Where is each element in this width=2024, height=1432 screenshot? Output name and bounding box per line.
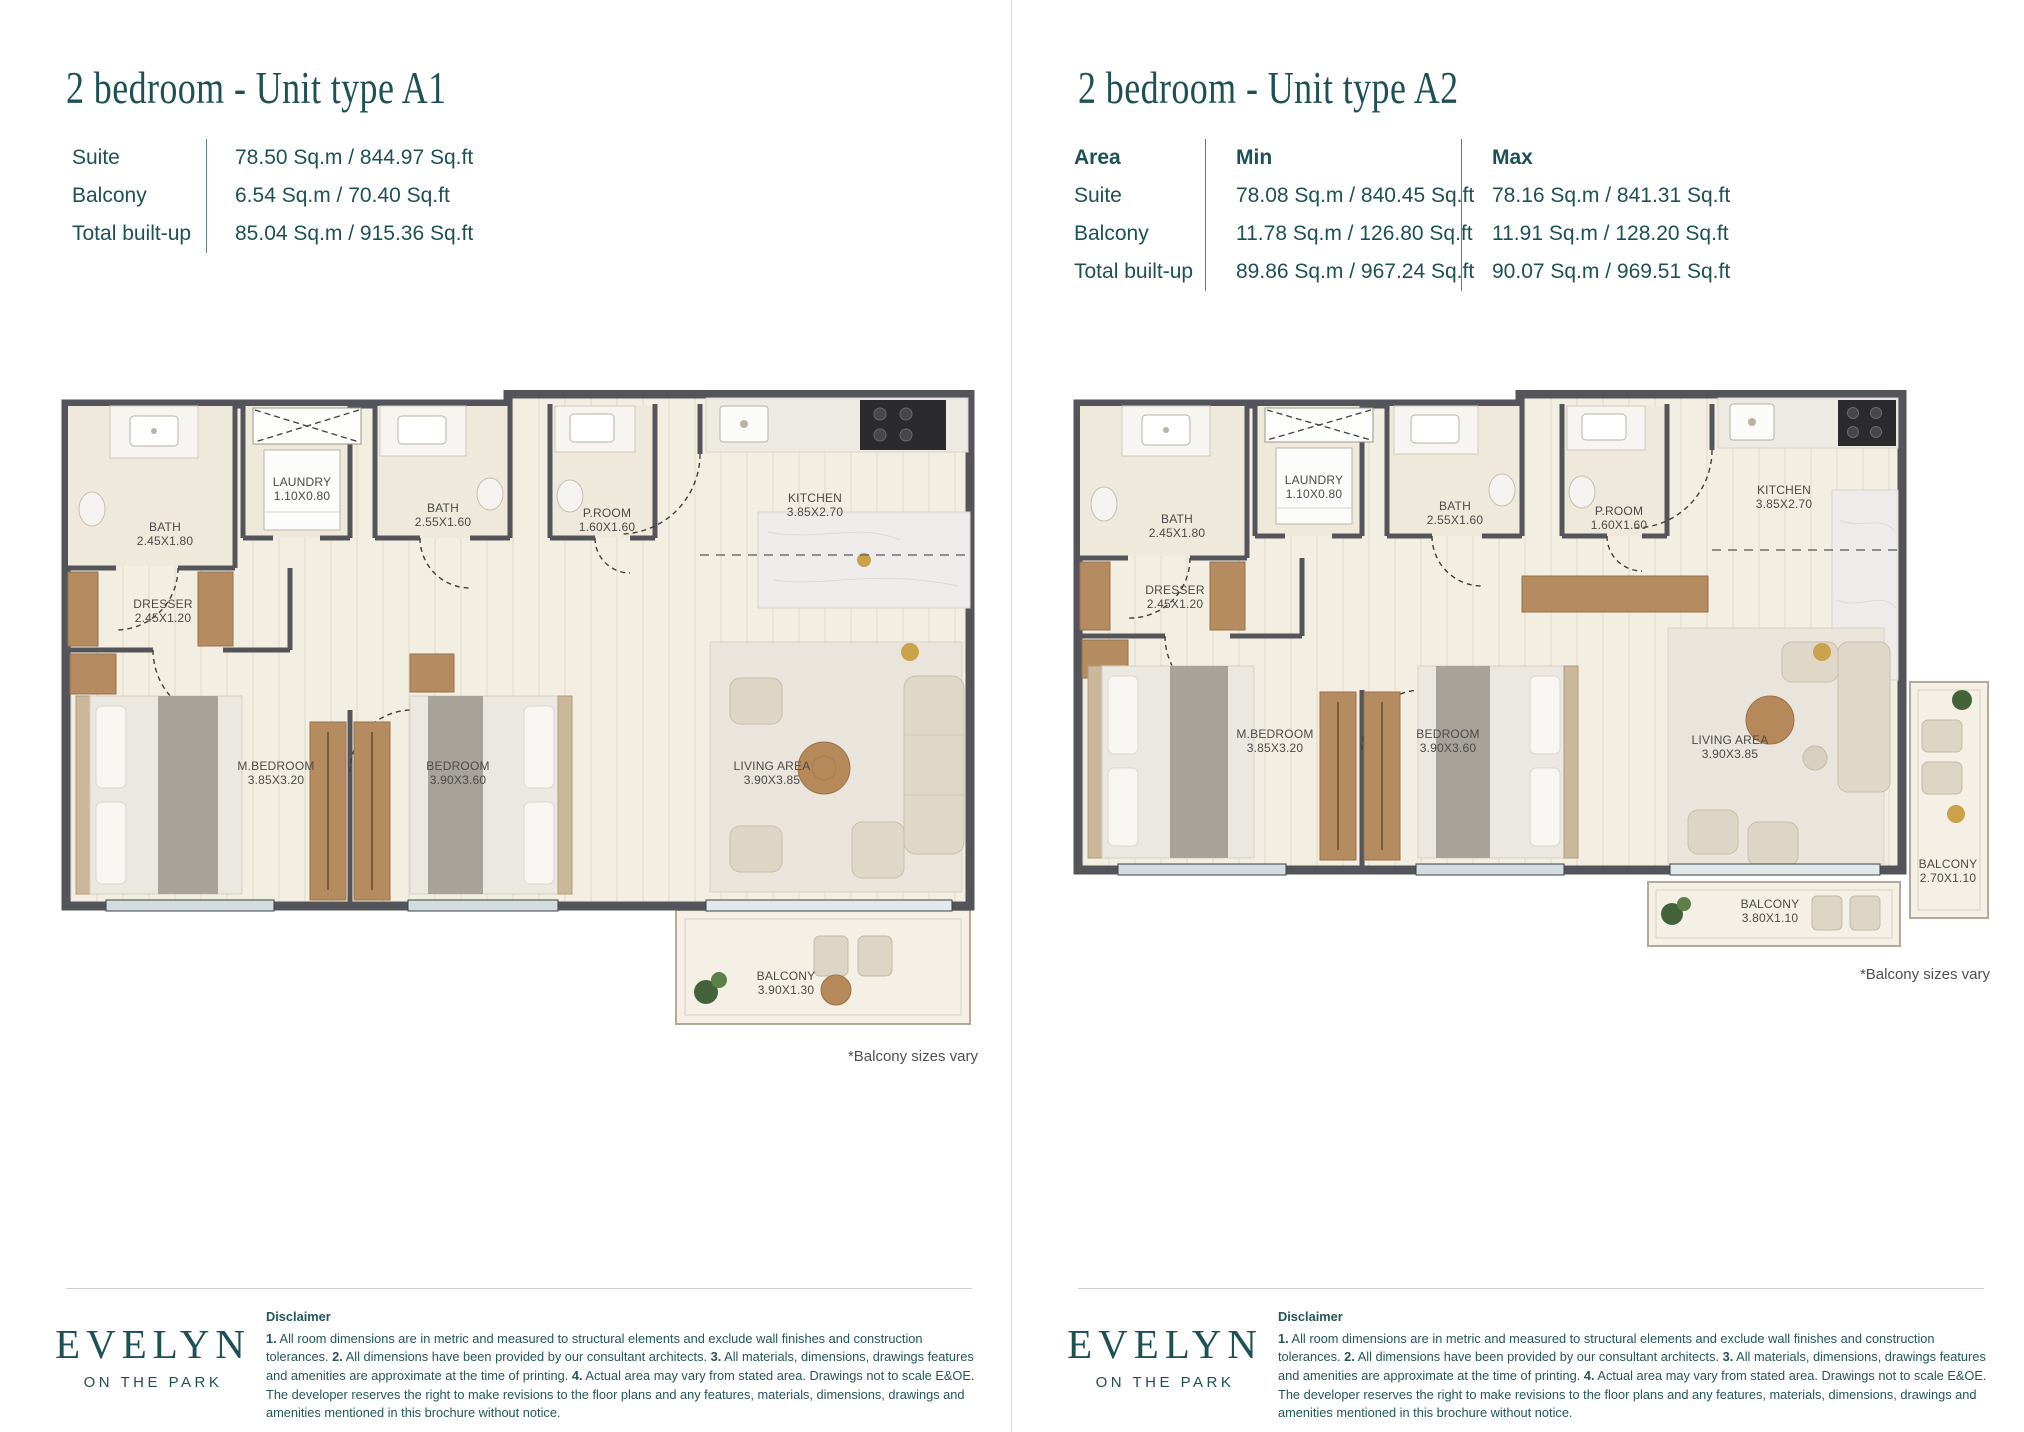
room-dim-dresser: 2.45X1.20 xyxy=(135,611,192,625)
logo-name: EVELYN xyxy=(1060,1322,1270,1367)
room-label-bedroom: BEDROOM xyxy=(426,759,489,773)
bedroom-bed xyxy=(410,696,572,894)
room-label-bath2: BATH xyxy=(1439,499,1471,513)
room-label-bath2: BATH xyxy=(427,501,459,515)
room-label-master-bedroom: M.BEDROOM xyxy=(237,759,314,773)
room-dim-balcony: 3.90X1.30 xyxy=(758,983,815,997)
row-max: 78.16 Sq.m / 841.31 Sq.ft xyxy=(1461,177,1730,215)
room-dim-powder-room: 1.60X1.60 xyxy=(1591,518,1648,532)
room-label-living-area: LIVING AREA xyxy=(1692,733,1769,747)
table-row: Suite 78.08 Sq.m / 840.45 Sq.ft 78.16 Sq… xyxy=(1074,177,1730,215)
room-dim-laundry: 1.10X0.80 xyxy=(1286,487,1343,501)
room-dim-living-area: 3.90X3.85 xyxy=(1702,747,1759,761)
room-dim-bath-main: 2.45X1.80 xyxy=(137,534,194,548)
table-header-row: Area Min Max xyxy=(1074,139,1730,177)
floorplan-a1: BATH 2.45X1.80 LAUNDRY 1.10X0.80 BATH 2.… xyxy=(58,390,978,1030)
logo-tagline: ON THE PARK xyxy=(48,1374,258,1391)
disclaimer: Disclaimer 1. All room dimensions are in… xyxy=(266,1308,978,1423)
room-dim-balcony: 3.80X1.10 xyxy=(1742,911,1799,925)
balcony-note: *Balcony sizes vary xyxy=(848,1048,978,1065)
room-label-powder-room: P.ROOM xyxy=(1595,504,1643,518)
room-dim-bath-main: 2.45X1.80 xyxy=(1149,526,1206,540)
row-label: Suite xyxy=(72,139,206,177)
entry-door-panel xyxy=(1265,408,1373,442)
windows xyxy=(1118,864,1880,875)
brochure-page-a2: 2 bedroom - Unit type A2 Area Min Max Su… xyxy=(1012,0,2024,1432)
room-label-balcony: BALCONY xyxy=(757,969,816,983)
room-dim-kitchen: 3.85X2.70 xyxy=(1756,497,1813,511)
page-title: 2 bedroom - Unit type A1 xyxy=(66,62,447,114)
row-max: 11.91 Sq.m / 128.20 Sq.ft xyxy=(1461,215,1729,253)
balcony-note: *Balcony sizes vary xyxy=(1860,966,1990,983)
header-area: Area xyxy=(1074,139,1205,177)
room-label-balcony: BALCONY xyxy=(1741,897,1800,911)
windows xyxy=(106,900,952,911)
master-bed xyxy=(76,696,242,894)
row-label: Balcony xyxy=(1074,215,1205,253)
room-dim-balcony-side: 2.70X1.10 xyxy=(1920,871,1977,885)
row-label: Total built-up xyxy=(1074,253,1205,291)
footer-divider xyxy=(66,1288,972,1289)
disclaimer-title: Disclaimer xyxy=(266,1308,978,1327)
room-label-bedroom: BEDROOM xyxy=(1416,727,1479,741)
room-label-living-area: LIVING AREA xyxy=(734,759,811,773)
brand-logo: EVELYN ON THE PARK xyxy=(1060,1322,1270,1391)
room-label-laundry: LAUNDRY xyxy=(1285,473,1344,487)
row-value: 78.50 Sq.m / 844.97 Sq.ft xyxy=(206,139,473,177)
master-bed xyxy=(1088,666,1254,858)
room-dim-powder-room: 1.60X1.60 xyxy=(579,520,636,534)
room-dim-kitchen: 3.85X2.70 xyxy=(787,505,844,519)
disclaimer-text: 1. All room dimensions are in metric and… xyxy=(266,1330,978,1423)
logo-name: EVELYN xyxy=(48,1322,258,1367)
row-min: 78.08 Sq.m / 840.45 Sq.ft xyxy=(1205,177,1461,215)
room-label-bath-main: BATH xyxy=(1161,512,1193,526)
row-label: Balcony xyxy=(72,177,206,215)
room-dim-laundry: 1.10X0.80 xyxy=(274,489,331,503)
room-dim-living-area: 3.90X3.85 xyxy=(744,773,801,787)
entry-door-panel xyxy=(253,408,361,444)
header-min: Min xyxy=(1205,139,1461,177)
logo-tagline: ON THE PARK xyxy=(1060,1374,1270,1391)
room-label-powder-room: P.ROOM xyxy=(583,506,631,520)
brochure-spread: { "colors": { "accent_teal": "#1d5156", … xyxy=(0,0,2024,1432)
stove-icon xyxy=(860,400,946,450)
row-label: Suite xyxy=(1074,177,1205,215)
bedroom-bed xyxy=(1418,666,1578,858)
table-row: Balcony 6.54 Sq.m / 70.40 Sq.ft xyxy=(72,177,473,215)
room-label-dresser: DRESSER xyxy=(1145,583,1205,597)
room-label-master-bedroom: M.BEDROOM xyxy=(1236,727,1313,741)
brochure-page-a1: 2 bedroom - Unit type A1 Suite 78.50 Sq.… xyxy=(0,0,1012,1432)
room-label-laundry: LAUNDRY xyxy=(273,475,332,489)
room-dim-master-bedroom: 3.85X3.20 xyxy=(1247,741,1304,755)
area-minmax-table: Area Min Max Suite 78.08 Sq.m / 840.45 S… xyxy=(1074,139,1730,291)
disclaimer: Disclaimer 1. All room dimensions are in… xyxy=(1278,1308,1990,1423)
row-min: 11.78 Sq.m / 126.80 Sq.ft xyxy=(1205,215,1461,253)
room-dim-bedroom: 3.90X3.60 xyxy=(1420,741,1477,755)
area-spec-table: Suite 78.50 Sq.m / 844.97 Sq.ft Balcony … xyxy=(72,139,473,253)
row-min: 89.86 Sq.m / 967.24 Sq.ft xyxy=(1205,253,1461,291)
stove-icon xyxy=(1838,400,1896,446)
room-dim-master-bedroom: 3.85X3.20 xyxy=(248,773,305,787)
balcony-area xyxy=(676,910,970,1024)
floorplan-a2: BATH 2.45X1.80 LAUNDRY 1.10X0.80 BATH 2.… xyxy=(1070,390,1990,1030)
footer-divider xyxy=(1078,1288,1984,1289)
header-max: Max xyxy=(1461,139,1533,177)
row-value: 85.04 Sq.m / 915.36 Sq.ft xyxy=(206,215,473,253)
row-label: Total built-up xyxy=(72,215,206,253)
row-value: 6.54 Sq.m / 70.40 Sq.ft xyxy=(206,177,450,215)
room-label-dresser: DRESSER xyxy=(133,597,193,611)
plant-icon xyxy=(1952,690,1972,710)
room-dim-bedroom: 3.90X3.60 xyxy=(430,773,487,787)
room-label-balcony-side: BALCONY xyxy=(1919,857,1978,871)
page-title: 2 bedroom - Unit type A2 xyxy=(1078,62,1459,114)
table-row: Balcony 11.78 Sq.m / 126.80 Sq.ft 11.91 … xyxy=(1074,215,1730,253)
room-dim-bath2: 2.55X1.60 xyxy=(1427,513,1484,527)
table-row: Suite 78.50 Sq.m / 844.97 Sq.ft xyxy=(72,139,473,177)
room-dim-bath2: 2.55X1.60 xyxy=(415,515,472,529)
room-dim-dresser: 2.45X1.20 xyxy=(1147,597,1204,611)
disclaimer-title: Disclaimer xyxy=(1278,1308,1990,1327)
disclaimer-text: 1. All room dimensions are in metric and… xyxy=(1278,1330,1990,1423)
room-label-bath-main: BATH xyxy=(149,520,181,534)
table-row: Total built-up 89.86 Sq.m / 967.24 Sq.ft… xyxy=(1074,253,1730,291)
brand-logo: EVELYN ON THE PARK xyxy=(48,1322,258,1391)
table-row: Total built-up 85.04 Sq.m / 915.36 Sq.ft xyxy=(72,215,473,253)
row-max: 90.07 Sq.m / 969.51 Sq.ft xyxy=(1461,253,1730,291)
room-label-kitchen: KITCHEN xyxy=(788,491,842,505)
room-label-kitchen: KITCHEN xyxy=(1757,483,1811,497)
